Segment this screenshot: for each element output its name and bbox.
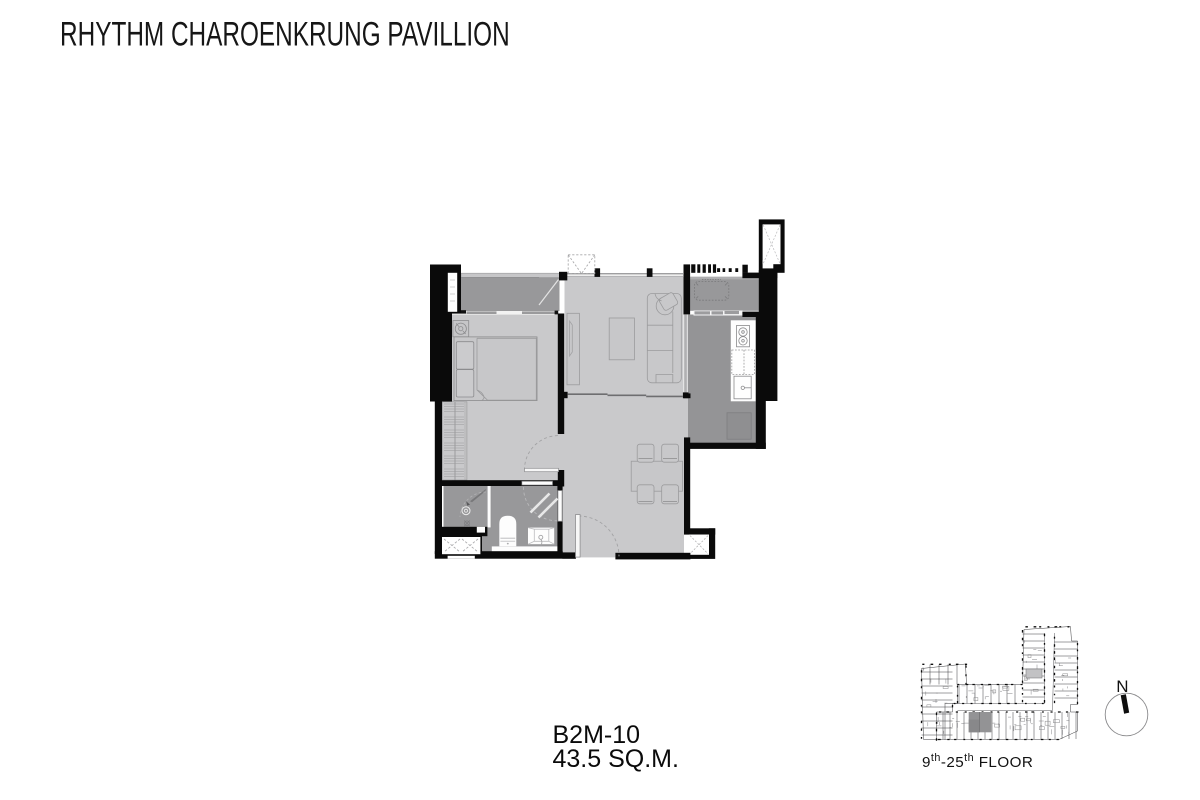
svg-text:9th-25th FLOOR: 9th-25th FLOOR xyxy=(922,752,1033,771)
svg-text:N: N xyxy=(1116,677,1128,696)
svg-text:43.5 SQ.M.: 43.5 SQ.M. xyxy=(553,745,679,773)
svg-text:RHYTHM CHAROENKRUNG PAVILLION: RHYTHM CHAROENKRUNG PAVILLION xyxy=(60,15,510,53)
